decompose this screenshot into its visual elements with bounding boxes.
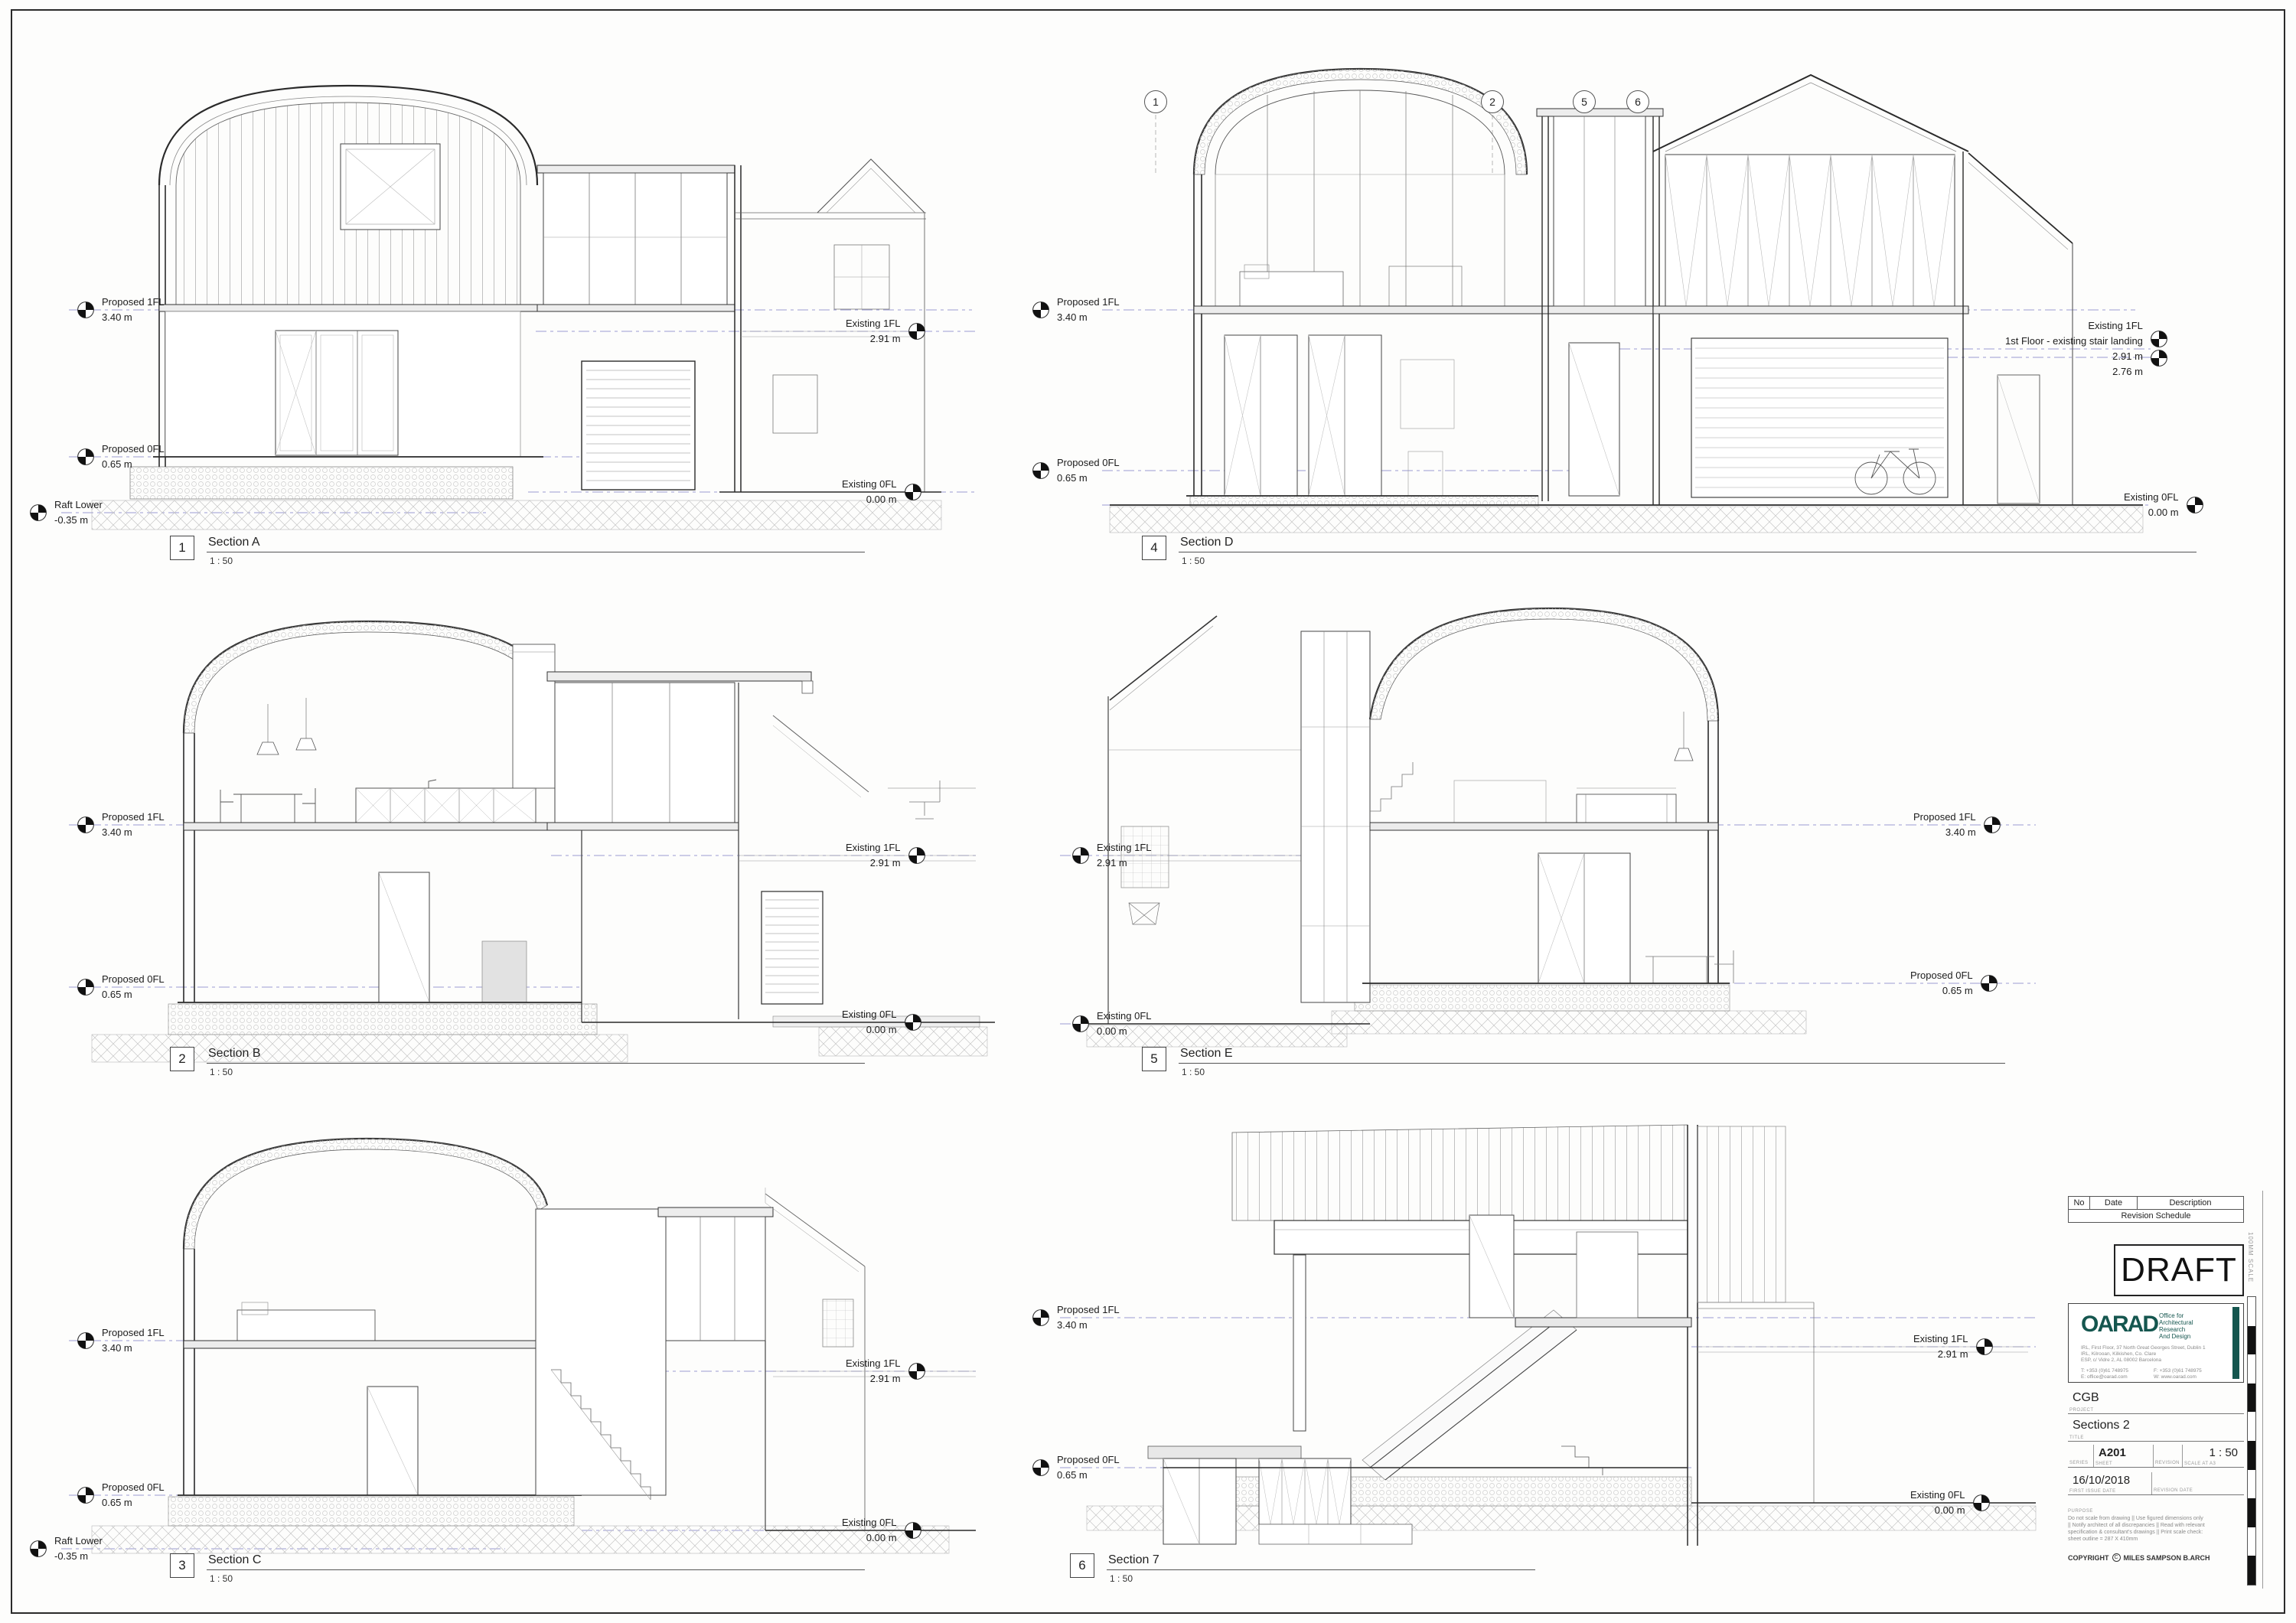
sheet-number: A201 [2094,1445,2153,1461]
section-number: 5 [1142,1047,1166,1071]
tower-glazing [1554,116,1645,306]
level-annotation: Existing 0FL0.00 m [1910,1489,1991,1516]
cabinet-furniture [1389,266,1462,306]
section-c-label: 3 Section C 1 : 50 [170,1553,865,1584]
level-annotation: Proposed 1FL3.40 m [1032,296,1120,323]
section-b-label: 2 Section B 1 : 50 [170,1047,865,1077]
table-and-chairs [220,788,315,823]
cut-wall [159,185,165,467]
bed-furniture [1240,272,1343,306]
level-annotation: Existing 1FL2.91 m [846,1357,926,1384]
ground-hatch [1110,507,2143,533]
section-number: 1 [170,536,194,560]
level-annotation: Proposed 0FL0.65 m [1032,1454,1120,1481]
label-rule [207,1063,865,1064]
revision-col-date: Date [2090,1197,2138,1209]
datum-level-icon [29,504,47,522]
office-chair-icon [888,781,976,819]
revision-label: REVISION [2154,1460,2182,1466]
existing-gable-roof [817,159,925,213]
first-issue-date-cell: 16/10/2018 FIRST ISSUE DATE [2068,1472,2152,1494]
foundation [130,467,513,499]
section-number: 4 [1142,536,1166,560]
stair-steps [1370,762,1413,811]
cut-wall [184,733,194,1002]
flat-roof [547,672,811,681]
landing-wall [1577,1232,1638,1318]
section-number: 2 [170,1047,194,1071]
purpose-block: PURPOSE Do not scale from drawing || Use… [2068,1509,2244,1543]
first-issue-date-label: FIRST ISSUE DATE [2068,1488,2151,1494]
flat-roof-slab [537,165,735,173]
grid-bubble-2: 2 [1481,90,1504,113]
copyright-icon: C [2112,1553,2121,1562]
label-rule [207,552,865,552]
datum-level-icon [1983,816,2001,834]
level-annotation: Raft Lower-0.35 m [29,1535,103,1562]
revision-cell: REVISION [2154,1445,2183,1467]
level-annotation: Existing 1FL2.91 m [846,842,926,869]
section-7-label: 6 Section 7 1 : 50 [1070,1553,1535,1584]
arch-insulation [1370,608,1718,721]
stair-stringer [1370,1318,1561,1468]
first-issue-date-value: 16/10/2018 [2068,1472,2151,1488]
level-annotation: Proposed 1FL3.40 m [77,296,165,323]
drawing-sheet: 1 2 5 6 Proposed 1FL3.40 m Proposed 0FL0… [0,0,2296,1623]
datum-level-icon [77,301,95,319]
firm-contacts: T: +353 (0)61 748975 F: +353 (0)61 74897… [2081,1368,2226,1380]
datum-level-icon [1032,1309,1050,1327]
label-rule [1107,1569,1535,1570]
louvre-vent [823,1299,853,1347]
section-a-drawing [46,54,995,536]
foundation [1355,985,1730,1011]
title-block-edge-line [2262,1191,2263,1589]
glazed-door [1309,335,1381,496]
section-scale: 1 : 50 [1179,1067,2005,1077]
grid-bubble-1: 1 [1144,90,1167,113]
firm-logo-block: OARAD Office for Architectural Research … [2068,1303,2244,1383]
upper-glazing [666,1217,765,1341]
table-and-chairs [1645,950,1733,983]
level-annotation: Proposed 0FL0.65 m [1910,970,1998,996]
pendant-light-icon [296,738,316,750]
sheet-scale-row: SERIES A201 SHEET REVISION 1 : 50 SCALE … [2068,1445,2244,1468]
cut-wall [1194,174,1202,496]
title-value: Sections 2 [2068,1417,2244,1435]
section-title: Section 7 [1107,1553,1535,1567]
section-title: Section C [207,1553,865,1567]
datum-level-icon [1972,1494,1991,1512]
sheet-cell: A201 SHEET [2094,1445,2154,1467]
cut-wall [184,1249,194,1495]
project-value: CGB [2068,1390,2244,1407]
section-scale: 1 : 50 [207,1573,865,1584]
copyright-line: COPYRIGHT C MILES SAMPSON B.ARCH [2068,1553,2244,1562]
datum-level-icon [77,978,95,996]
title-field: Sections 2 TITLE [2068,1417,2244,1442]
gable-roof [1653,75,1968,152]
project-label: PROJECT [2068,1407,2244,1413]
datum-level-icon [1980,974,1998,992]
title-label: TITLE [2068,1435,2244,1441]
datum-level-icon [77,816,95,834]
section-e-label: 5 Section E 1 : 50 [1142,1047,2005,1077]
glazed-gable-wall [1665,155,1955,306]
datum-level-icon [1032,1458,1050,1477]
grid-bubble-label: 2 [1489,96,1495,108]
section-d-label: 4 Section D 1 : 50 [1142,536,2197,566]
level-annotation: Existing 1FL 1st Floor - existing stair … [2005,320,2168,377]
scale-bar [2247,1296,2256,1586]
level-annotation: Proposed 0FL0.65 m [1032,457,1120,484]
revision-date-label: REVISION DATE [2152,1488,2244,1494]
section-scale: 1 : 50 [1107,1573,1535,1584]
siding-upper-volume [1232,1125,1688,1221]
arch-roof [1194,69,1527,174]
roof-overhang [765,1194,865,1266]
building-linework [1087,1125,2036,1546]
revision-schedule-title: Revision Schedule [2069,1210,2243,1222]
level-annotation: Proposed 1FL3.40 m [1032,1304,1120,1331]
existing-pitched-roof [773,715,869,792]
sliding-door [1163,1458,1236,1544]
level-annotation: Existing 0FL0.00 m [2124,491,2204,518]
level-annotation: Proposed 1FL3.40 m [1913,811,2001,838]
scale-label: SCALE AT A3 [2183,1461,2244,1467]
datum-level-icon [2186,496,2204,514]
section-title: Section A [207,536,865,549]
logo-tagline: Office for Architectural Research And De… [2159,1312,2193,1340]
scale-bar-label: 100MM SCALE [2247,1232,2254,1282]
glazed-link [1301,631,1370,1002]
project-field: CGB PROJECT [2068,1390,2244,1414]
arch-insulation [184,1139,547,1249]
foundation-slab [1171,1477,1691,1506]
building-linework [92,86,941,530]
grid-bubble-label: 1 [1153,96,1159,108]
label-rule [1179,1063,2005,1064]
section-scale: 1 : 50 [207,556,865,566]
purpose-label: PURPOSE [2068,1509,2244,1514]
sofa-furniture [1577,794,1676,823]
draft-stamp: DRAFT [2114,1244,2244,1296]
section-b-drawing [46,597,995,1079]
terrace-slab [1148,1446,1301,1458]
grid-bubble-5: 5 [1573,90,1596,113]
level-annotation: Proposed 1FL3.40 m [77,1327,165,1354]
building-linework [1087,608,1806,1047]
cut-wall [1708,721,1718,983]
label-rule [1179,552,2197,552]
series-cell: SERIES [2068,1445,2094,1467]
pendant-light-icon [257,742,279,754]
level-annotation: Proposed 0FL0.65 m [77,443,165,470]
glazed-doors [276,331,398,455]
existing-roof-slope [1110,616,1217,700]
glazed-door [1225,335,1297,496]
section-number: 6 [1070,1553,1094,1578]
grid-bubble-label: 6 [1635,96,1641,108]
datum-level-icon [29,1540,47,1558]
section-a-label: 1 Section A 1 : 50 [170,536,865,566]
section-title: Section E [1179,1047,2005,1061]
section-scale: 1 : 50 [207,1067,865,1077]
first-floor-slab [159,305,537,311]
scale-value: 1 : 50 [2183,1445,2244,1461]
level-annotation: Existing 0FL0.00 m [842,1517,922,1543]
level-annotation: Existing 1FL2.91 m [1913,1333,1994,1360]
party-wall [735,165,741,492]
revision-date-cell: REVISION DATE [2152,1472,2244,1494]
level-annotation: Raft Lower-0.35 m [29,499,103,526]
level-annotation: Existing 0FL0.00 m [1071,1010,1152,1037]
stair-tower [536,1209,666,1495]
stair-balustrade [1362,1310,1577,1480]
stair-steps [1561,1446,1603,1475]
revision-schedule-table: No Date Description Revision Schedule [2068,1196,2244,1223]
foundation [168,1497,574,1526]
grid-bubble-label: 5 [1581,96,1587,108]
arch-insulation [184,621,547,733]
level-annotation: Existing 1FL2.91 m [846,318,926,344]
first-floor-slab [184,1341,551,1348]
arch-roof [1370,608,1718,721]
level-annotation: Proposed 0FL0.65 m [77,973,165,1000]
level-annotation: Proposed 1FL3.40 m [77,811,165,838]
tap-icon [429,780,436,788]
foundation [168,1004,597,1035]
datum-level-icon [77,1486,95,1504]
datum-level-icon [908,322,926,341]
first-floor-slab [1370,823,1718,830]
logo-accent-bar [2232,1307,2239,1379]
plinth-block [482,941,527,1002]
revision-col-no: No [2069,1197,2090,1209]
datum-level-icon [77,448,95,466]
datum-level-icon [1975,1338,1994,1356]
level-annotation: Existing 1FL2.91 m [1071,842,1152,869]
first-floor-slab [184,823,551,830]
section-e-drawing [1041,597,2066,1079]
datum-level-icon [908,846,926,865]
arch-insulation [1194,69,1527,174]
section-scale: 1 : 50 [1179,556,2197,566]
extractor-flue [513,644,555,788]
slot-window [1293,1255,1306,1431]
flat-roof [658,1207,773,1217]
section-7-drawing [1041,1117,2066,1607]
kitchen-counter [356,788,536,823]
level-annotation: Existing 0FL0.00 m [842,1009,922,1035]
datum-level-icon [904,1521,922,1540]
datum-level-icon [1071,846,1090,865]
building-linework [92,1139,976,1553]
datum-level-icon [77,1331,95,1350]
datum-level-icon [904,1013,922,1031]
existing-siding [1698,1126,1786,1302]
firm-addresses: IRL, First Floor, 37 North Great Georges… [2081,1345,2206,1364]
datum-level-icon [908,1362,926,1380]
ground-hatch [92,500,941,530]
level-annotation: Proposed 0FL0.65 m [77,1481,165,1508]
upper-landing-slab [1515,1318,1691,1327]
section-title: Section D [1179,536,2197,549]
base-cabinets [1259,1524,1412,1544]
sheet-label: SHEET [2094,1461,2153,1467]
revision-col-description: Description [2138,1197,2243,1209]
datum-level-icon [1032,301,1050,319]
building-linework [1110,69,2143,533]
kitchen-unit [1454,781,1546,823]
series-label: SERIES [2068,1460,2093,1466]
upper-glazing [555,683,735,823]
section-title: Section B [207,1047,865,1061]
datum-level-icon [1032,461,1050,480]
date-row: 16/10/2018 FIRST ISSUE DATE REVISION DAT… [2068,1472,2244,1495]
oarad-logo: OARAD [2081,1312,2157,1338]
lean-to-roof [1968,153,2073,243]
pendant-light-icon [1675,748,1693,761]
datum-level-icon [2150,349,2168,367]
basket-icon [1129,903,1159,924]
scale-cell: 1 : 50 SCALE AT A3 [2183,1445,2244,1467]
datum-level-icon [1071,1015,1090,1033]
datum-level-icon [904,483,922,501]
datum-level-icon [2150,330,2168,348]
label-rule [207,1569,865,1570]
grid-bubble-6: 6 [1626,90,1649,113]
section-number: 3 [170,1553,194,1578]
level-annotation: Existing 0FL0.00 m [842,478,922,505]
